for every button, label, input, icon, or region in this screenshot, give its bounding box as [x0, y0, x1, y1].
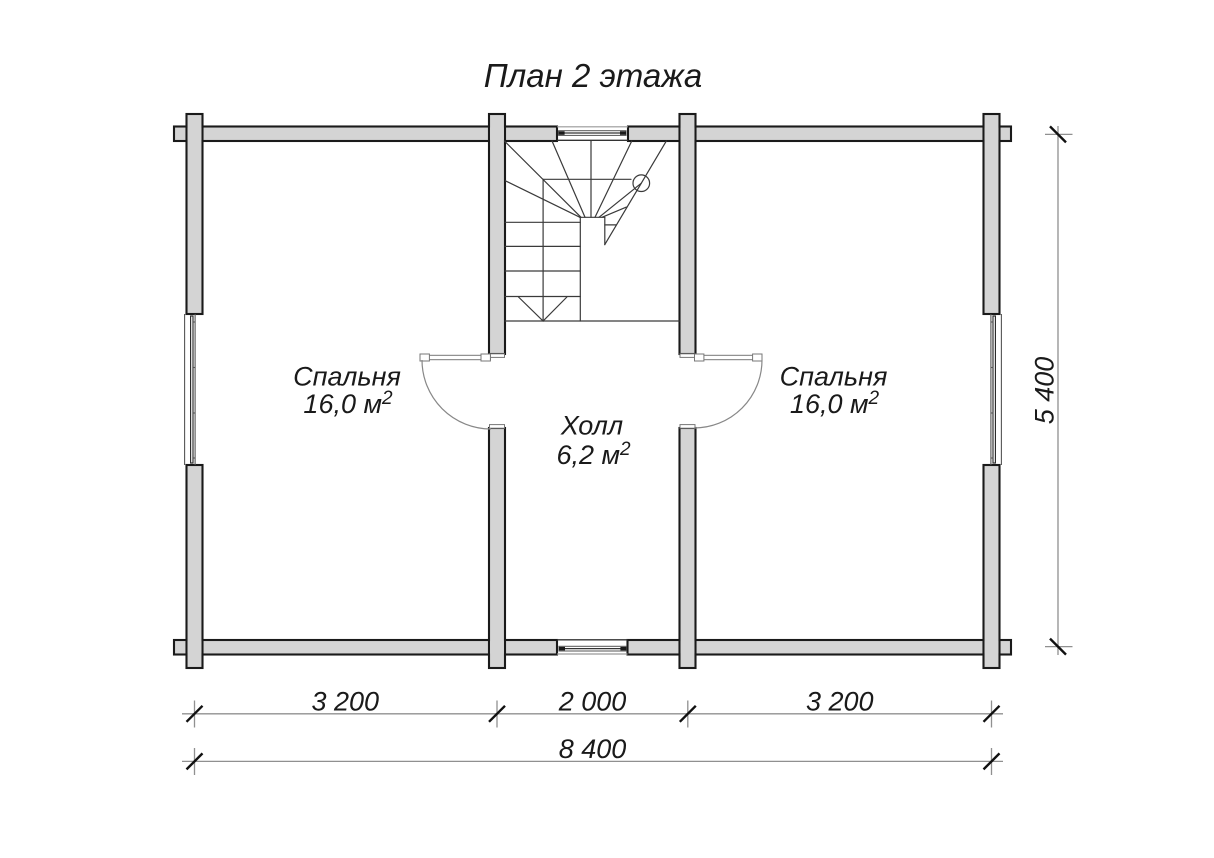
svg-text:3 200: 3 200	[806, 687, 874, 717]
svg-text:Спальня: Спальня	[293, 362, 401, 392]
svg-text:2 000: 2 000	[558, 687, 627, 717]
svg-text:Холл: Холл	[560, 411, 623, 441]
svg-text:3 200: 3 200	[312, 687, 380, 717]
svg-text:8 400: 8 400	[559, 734, 627, 764]
svg-text:5 400: 5 400	[1030, 357, 1060, 425]
svg-text:6,2 м2: 6,2 м2	[556, 439, 631, 470]
svg-text:16,0 м2: 16,0 м2	[790, 388, 880, 419]
svg-text:План 2 этажа: План 2 этажа	[484, 57, 702, 94]
svg-text:Спальня: Спальня	[780, 362, 888, 392]
svg-text:16,0 м2: 16,0 м2	[303, 388, 393, 419]
